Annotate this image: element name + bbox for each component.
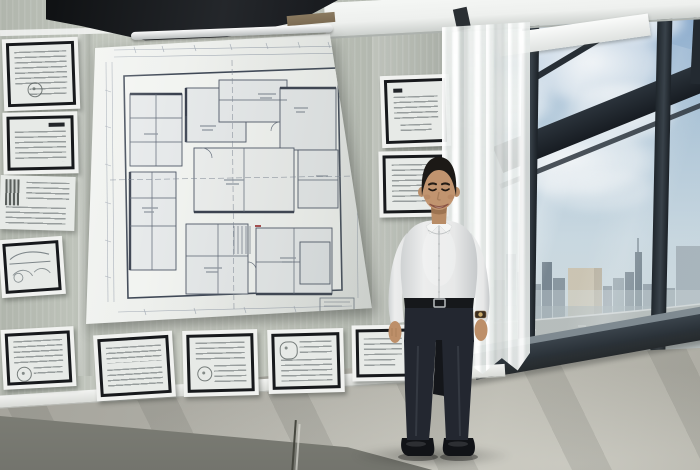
man-shoes [398,438,478,461]
framed-document [2,37,80,112]
blueprint-board-wrap [84,30,376,330]
framed-document [93,331,176,402]
sketch-drawing [6,243,59,290]
framed-document [0,326,76,390]
man-trousers [404,306,474,440]
framed-document [182,329,259,397]
man-head [418,157,460,224]
blueprint-board [84,30,376,330]
man-belt [404,298,474,308]
man [378,146,500,464]
framed-document [2,111,78,175]
framed-document [380,74,451,148]
unframed-document [0,175,76,231]
framed-sketch [0,236,66,298]
office-photo-scene [0,0,700,470]
paper-sheen [84,30,376,330]
framed-document [267,328,345,394]
